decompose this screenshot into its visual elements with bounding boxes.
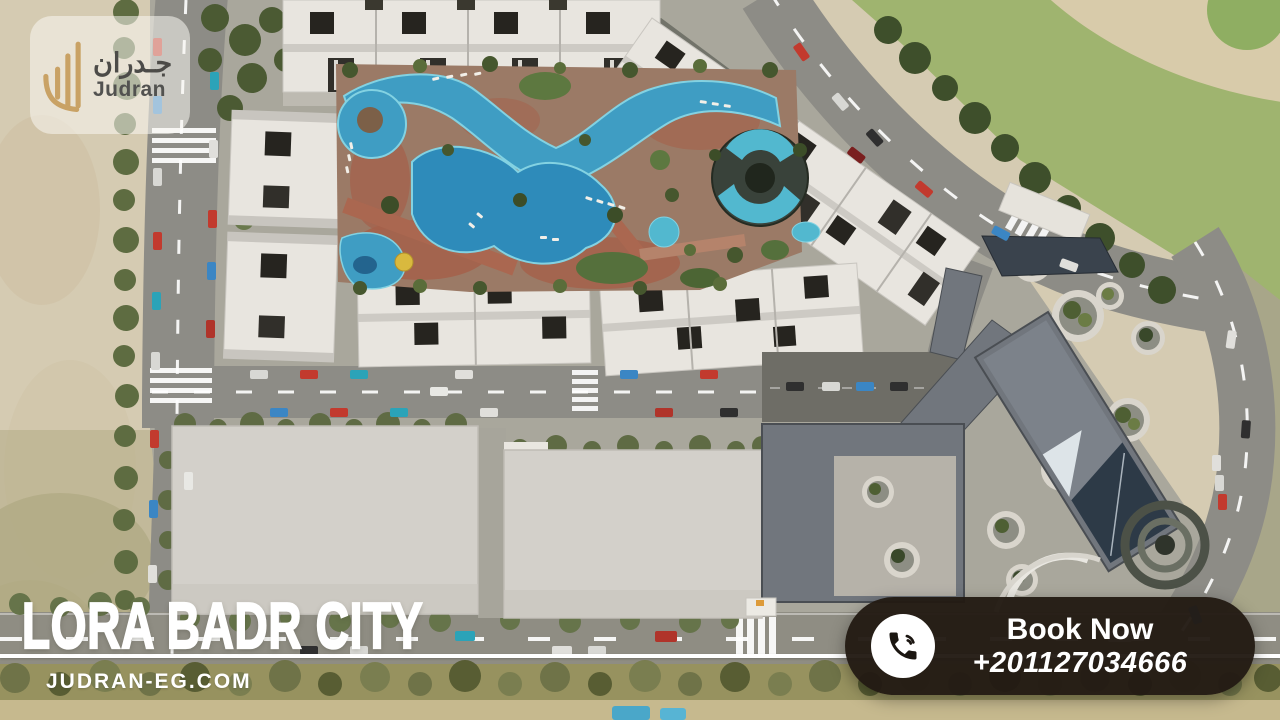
logo-arabic-text: جـدران	[93, 49, 172, 77]
pool-courtyard	[336, 56, 820, 295]
judran-logo-card: جـدران Judran	[30, 16, 190, 134]
phone-icon-circle	[871, 614, 935, 678]
book-now-button[interactable]: Book Now +201127034666	[845, 597, 1255, 695]
page-title: LORA BADR CITY	[22, 589, 423, 664]
phone-call-icon	[885, 628, 921, 664]
promo-image-lora-badr-city: جـدران Judran LORA BADR CITY JUDRAN-EG.C…	[0, 0, 1280, 720]
cta-phone-number: +201127034666	[973, 647, 1188, 679]
entrance-canopy	[982, 236, 1118, 276]
website-url: JUDRAN-EG.COM	[46, 670, 252, 694]
round-water-feature	[712, 129, 808, 226]
pool-slide	[395, 253, 413, 271]
logo-latin-text: Judran	[93, 79, 172, 101]
judran-walls-logo-icon	[40, 29, 84, 121]
residential-building-left-column	[223, 110, 342, 362]
cta-label: Book Now	[1007, 613, 1154, 647]
